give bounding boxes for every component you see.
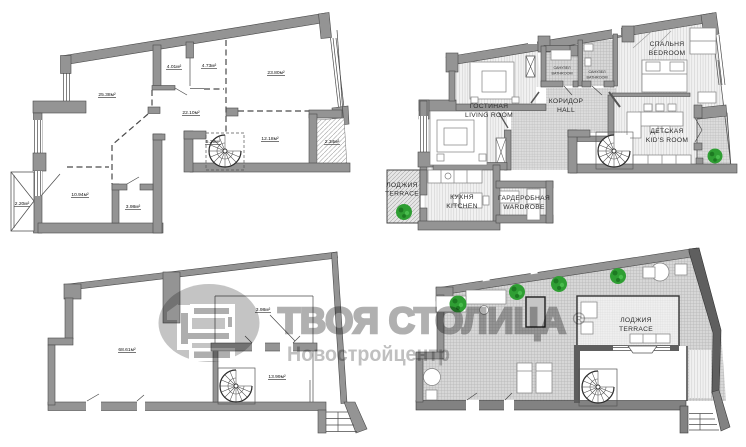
svg-text:ТВОЯ СТОЛИЦА: ТВОЯ СТОЛИЦА: [278, 300, 566, 341]
svg-text:ЛОДЖИЯ: ЛОДЖИЯ: [620, 317, 652, 324]
svg-text:12.18м²: 12.18м²: [261, 136, 279, 142]
svg-text:KITCHEN: KITCHEN: [446, 203, 477, 210]
svg-text:LIVING ROOM: LIVING ROOM: [465, 112, 513, 119]
svg-text:ДЕТСКАЯ: ДЕТСКАЯ: [650, 128, 683, 135]
svg-text:KID'S ROOM: KID'S ROOM: [646, 137, 689, 144]
svg-text:5.29м²: 5.29м²: [206, 139, 221, 145]
svg-text:3.98м²: 3.98м²: [256, 307, 271, 313]
svg-text:TERRACE: TERRACE: [385, 191, 419, 198]
svg-text:HALL: HALL: [557, 107, 575, 114]
svg-text:ЛОДЖИЯ: ЛОДЖИЯ: [386, 182, 418, 189]
svg-text:R: R: [576, 315, 582, 324]
svg-text:25.38м²: 25.38м²: [98, 92, 116, 98]
svg-text:13.99м²: 13.99м²: [268, 374, 286, 380]
svg-text:2.34м²: 2.34м²: [325, 139, 340, 145]
svg-text:4.73м²: 4.73м²: [202, 63, 217, 69]
svg-text:BATHROOM: BATHROOM: [586, 76, 607, 80]
svg-text:TERRACE: TERRACE: [619, 326, 653, 333]
svg-text:22.10м²: 22.10м²: [182, 110, 200, 116]
svg-text:4.01м²: 4.01м²: [167, 64, 182, 70]
svg-text:КУХНЯ: КУХНЯ: [450, 194, 474, 201]
svg-text:КОРИДОР: КОРИДОР: [549, 98, 584, 105]
svg-text:САНУЗЕЛ: САНУЗЕЛ: [553, 66, 571, 70]
svg-text:WARDROBE: WARDROBE: [503, 204, 545, 211]
svg-text:3.98м²: 3.98м²: [126, 204, 141, 210]
svg-text:23.80м²: 23.80м²: [267, 70, 285, 76]
svg-text:BATHROOM: BATHROOM: [551, 72, 572, 76]
svg-text:Новостройцентр: Новостройцентр: [287, 343, 450, 366]
svg-text:68.61м²: 68.61м²: [118, 347, 136, 353]
svg-text:САНУЗЕЛ: САНУЗЕЛ: [588, 70, 606, 74]
svg-text:BEDROOM: BEDROOM: [649, 50, 686, 57]
svg-text:2.20м²: 2.20м²: [15, 201, 30, 207]
svg-text:СПАЛЬНЯ: СПАЛЬНЯ: [650, 41, 685, 48]
svg-text:ГАРДЕРОБНАЯ: ГАРДЕРОБНАЯ: [498, 195, 550, 202]
svg-text:10.94м²: 10.94м²: [71, 192, 89, 198]
svg-text:ГОСТИНАЯ: ГОСТИНАЯ: [470, 103, 508, 110]
